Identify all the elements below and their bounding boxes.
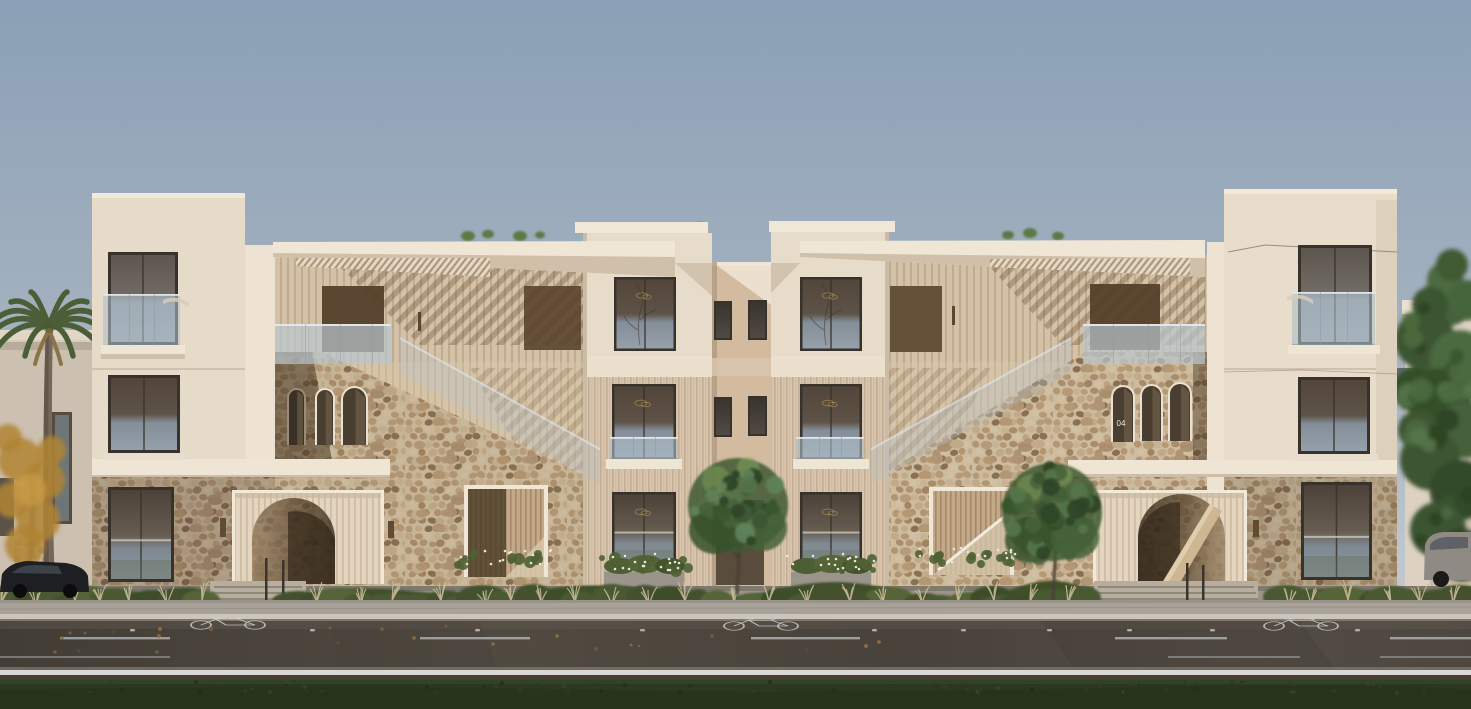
svg-text:04: 04 [1117, 419, 1126, 428]
